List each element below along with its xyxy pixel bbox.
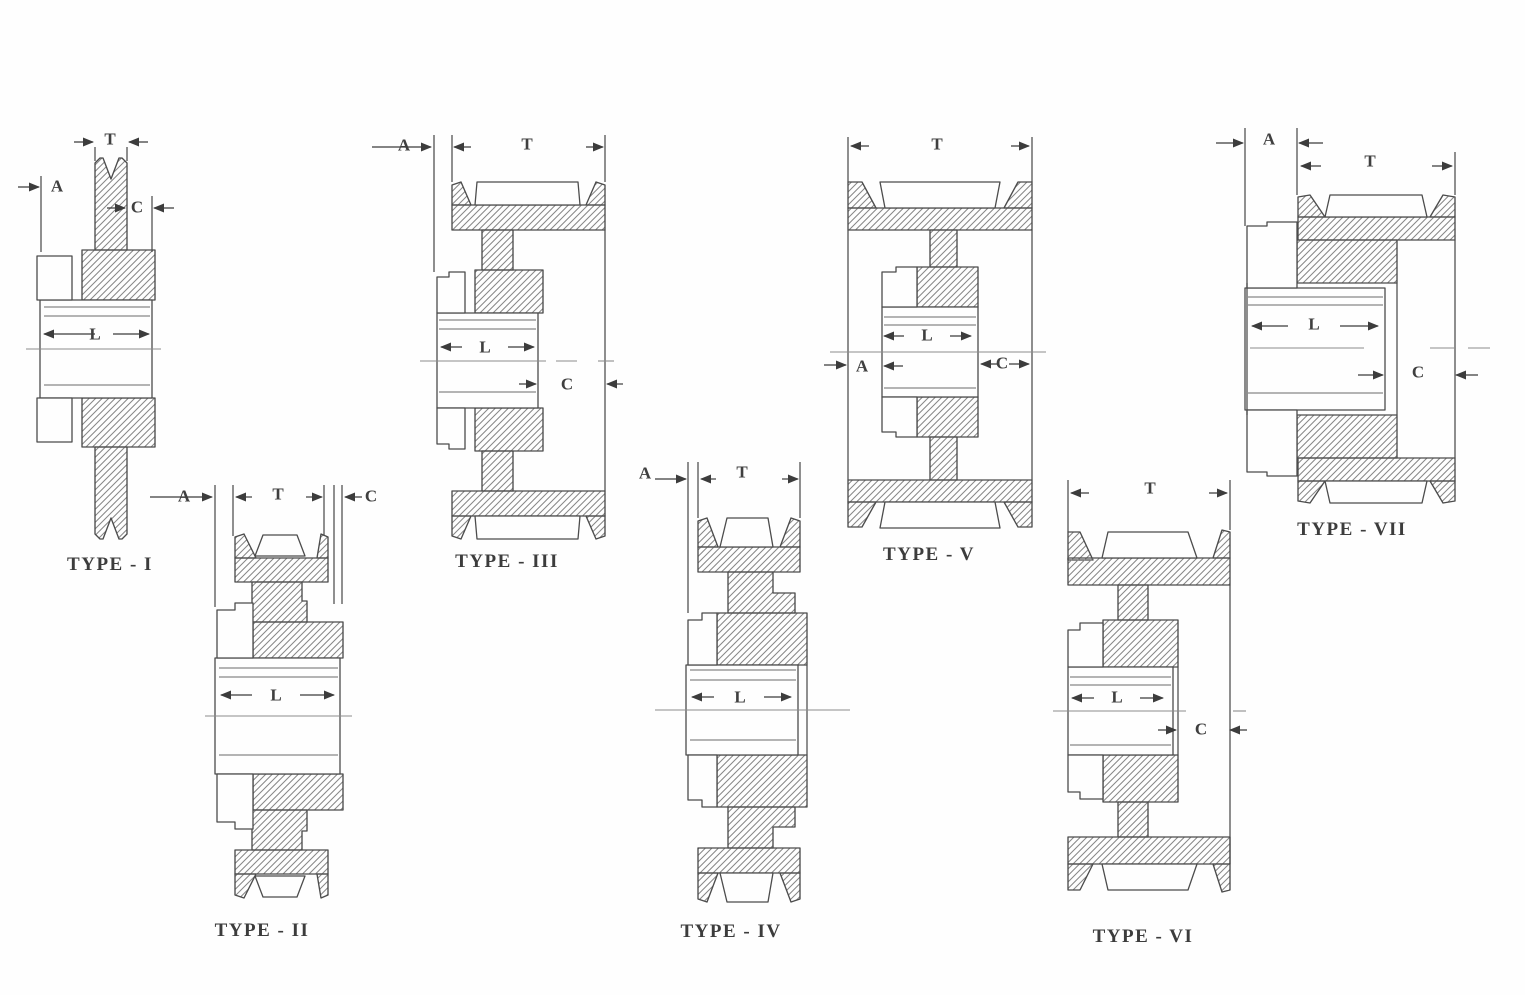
type-iii-dim-label-T: T [521, 136, 532, 153]
type-vii-drawing [1216, 128, 1490, 503]
type-vi-dim-label-T: T [1144, 480, 1155, 497]
type-iii-dim-label-L: L [479, 339, 490, 356]
type-iv-dim-label-A: A [639, 465, 651, 482]
type-ii-drawing [150, 485, 362, 898]
technical-drawing [0, 0, 1525, 995]
type-iii-dim-label-A: A [398, 137, 410, 154]
type-ii-dim-label-C: C [365, 488, 377, 505]
type-ii-dim-label-L: L [270, 687, 281, 704]
type-vii-dim-label-L: L [1308, 316, 1319, 333]
type-iv-dim-label-T: T [736, 464, 747, 481]
type-v-caption: TYPE - V [883, 544, 975, 566]
type-ii-dim-label-T: T [272, 486, 283, 503]
type-v-drawing [824, 137, 1046, 528]
type-ii-caption: TYPE - II [215, 920, 310, 942]
type-i-dim-label-T: T [104, 131, 115, 148]
type-iii-dim-label-C: C [561, 376, 573, 393]
type-vi-dim-label-C: C [1195, 721, 1207, 738]
type-vii-dim-label-C: C [1412, 364, 1424, 381]
type-vii-dim-label-T: T [1364, 153, 1375, 170]
diagram-sheet: T A C L TYPE - I A T C L TYPE - II A T L… [0, 0, 1525, 995]
type-v-dim-label-A: A [856, 358, 868, 375]
type-vi-caption: TYPE - VI [1093, 926, 1194, 948]
type-vii-caption: TYPE - VII [1297, 519, 1407, 541]
type-vii-dim-label-A: A [1263, 131, 1275, 148]
type-i-dim-label-A: A [51, 178, 63, 195]
type-iii-drawing [372, 135, 623, 539]
type-v-dim-label-C: C [996, 355, 1008, 372]
type-ii-dim-label-A: A [178, 488, 190, 505]
type-vi-dim-label-L: L [1111, 689, 1122, 706]
type-iv-caption: TYPE - IV [680, 921, 781, 943]
type-i-dim-label-C: C [131, 199, 143, 216]
type-vi-drawing [1053, 480, 1247, 892]
type-v-dim-label-L: L [921, 327, 932, 344]
type-i-caption: TYPE - I [67, 554, 153, 576]
type-iv-drawing [655, 462, 850, 902]
type-i-dim-label-L: L [89, 326, 100, 343]
type-v-dim-label-T: T [931, 136, 942, 153]
type-iii-caption: TYPE - III [455, 551, 559, 573]
type-iv-dim-label-L: L [734, 689, 745, 706]
